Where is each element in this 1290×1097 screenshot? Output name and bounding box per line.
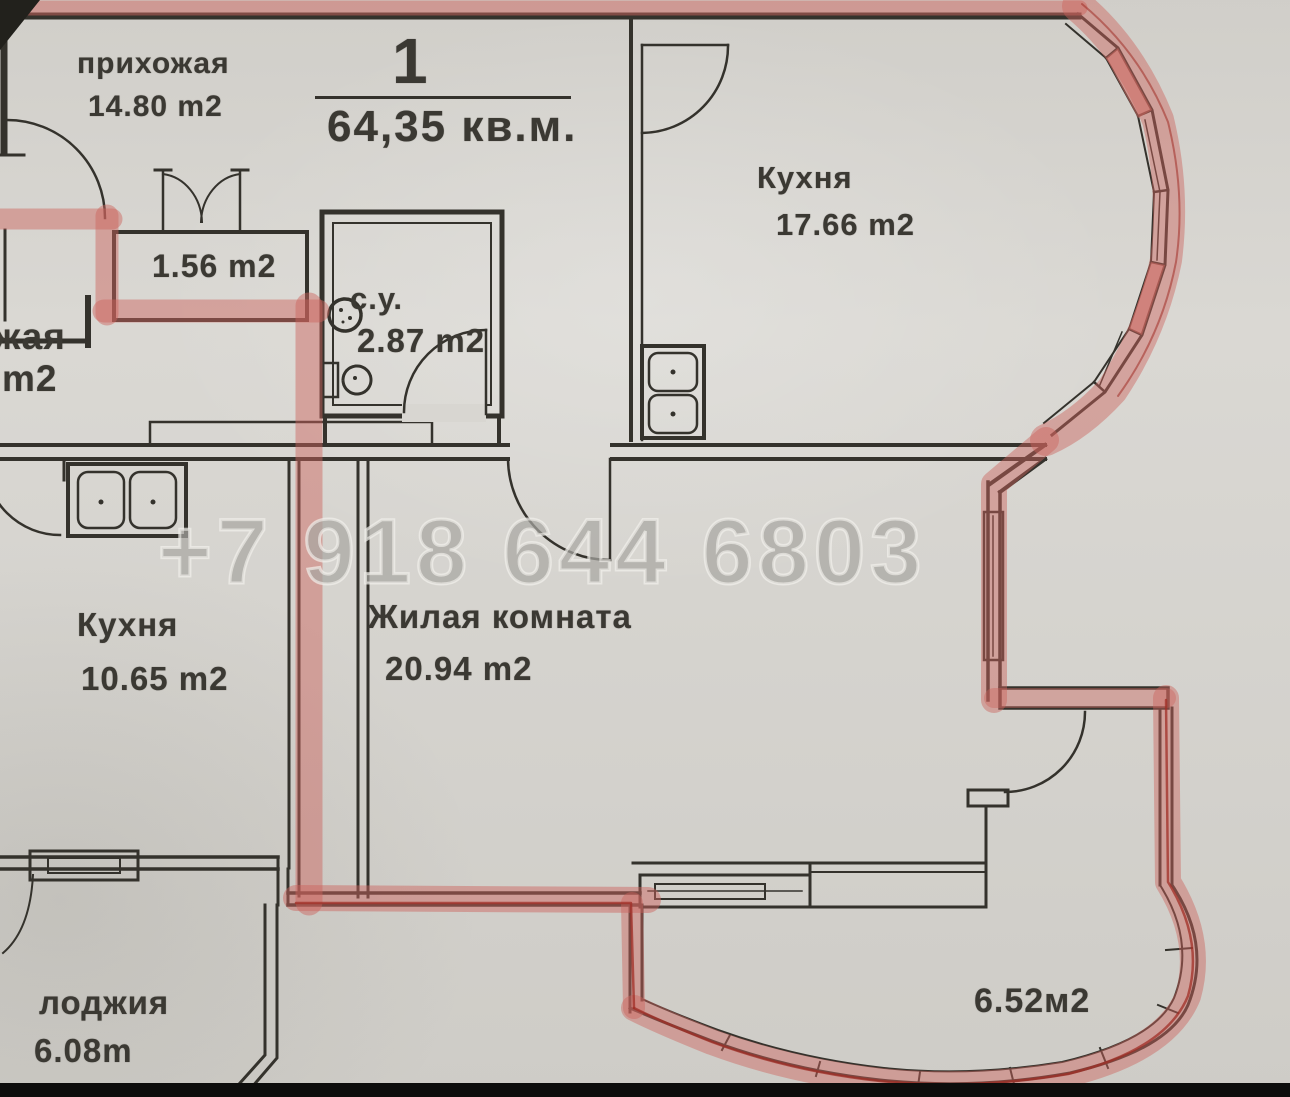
double-door-left-leaf-arc <box>163 174 202 222</box>
room-label-kitchen-left-name: Кухня <box>77 606 178 644</box>
room-label-kitchen-left-area: 10.65 m2 <box>81 660 228 698</box>
room-label-loggia-name: лоджия <box>39 984 169 1022</box>
highlight-core-curve <box>634 700 1193 1084</box>
bathroom-outline-outer <box>322 212 502 416</box>
balcony-door-arc <box>1005 712 1085 792</box>
double-door-right-leaf-arc <box>201 174 240 222</box>
room-label-loggia-area: 6.08m <box>34 1032 133 1070</box>
title-divider-line <box>315 96 571 99</box>
room-label-bathroom-name: с.у. <box>350 281 403 317</box>
entry-door-arc <box>7 120 105 218</box>
highlight-bay <box>1046 6 1169 440</box>
kitchen-left-door-arc <box>0 460 60 535</box>
room-label-kitchen-top-name: Кухня <box>757 160 853 196</box>
total-area: 64,35 кв.м. <box>327 102 577 152</box>
room-label-balcony-area: 6.52м2 <box>974 982 1090 1021</box>
photo-corner-shadow <box>0 0 40 50</box>
bathroom-door-opening <box>402 404 486 422</box>
room-label-neighbor-area-cut: m2 <box>2 358 57 400</box>
room-label-kitchen-top-area: 17.66 m2 <box>776 207 915 243</box>
room-label-bathroom-area: 2.87 m2 <box>357 322 485 360</box>
toilet-icon <box>323 363 371 397</box>
kitchen-top-sink-icon <box>642 346 704 438</box>
hallway-niche-line <box>150 422 432 443</box>
room-label-closet-area: 1.56 m2 <box>152 248 276 285</box>
kitchen-top-door-arc <box>642 45 728 133</box>
highlight-right-wall <box>994 440 1046 700</box>
living-bottom-parapet <box>810 863 986 907</box>
room-label-hallway-area: 14.80 m2 <box>88 90 223 124</box>
balcony-step <box>968 790 1008 806</box>
room-label-living-area: 20.94 m2 <box>385 650 532 688</box>
highlight-core-bottom <box>296 903 634 1008</box>
loggia-lower-wall <box>240 905 277 1087</box>
loggia-door-arc <box>3 875 33 953</box>
phone-watermark: +7 918 644 6803 <box>158 500 926 605</box>
room-label-neighbor-name-cut: жая <box>0 316 66 358</box>
room-label-hallway-name: прихожая <box>77 47 230 81</box>
photo-bottom-bar <box>0 1083 1290 1097</box>
unit-number: 1 <box>392 24 429 98</box>
floor-plan-page: { "document": { "type": "apartment floor… <box>0 0 1290 1097</box>
highlight-living-bottom <box>296 898 648 900</box>
